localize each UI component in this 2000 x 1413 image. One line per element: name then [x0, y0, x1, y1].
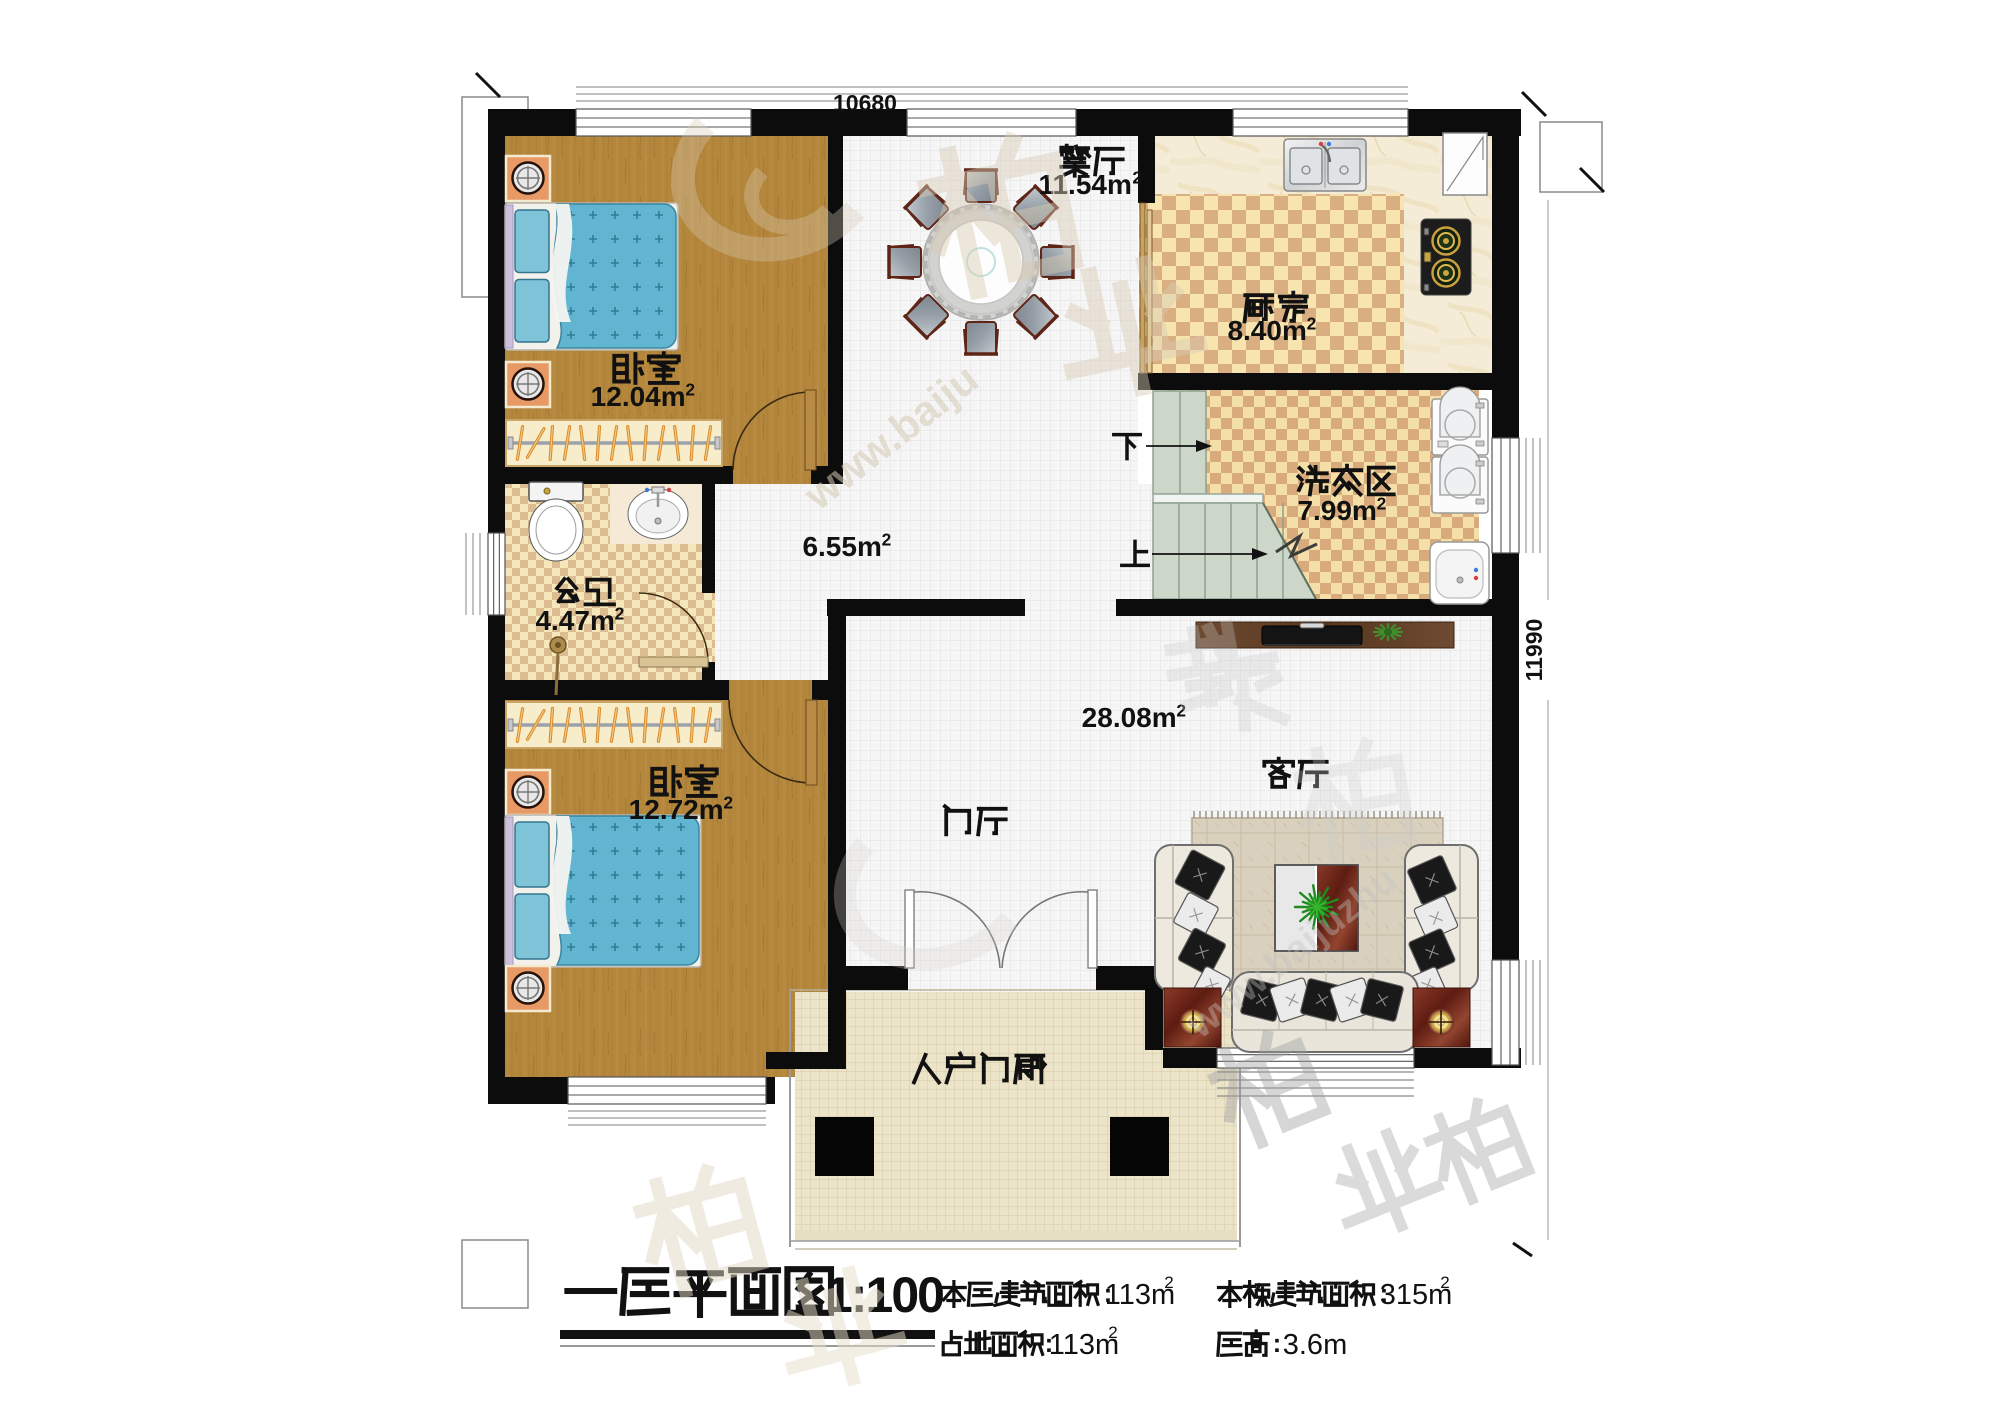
svg-text:2: 2 — [882, 529, 892, 549]
svg-text:2: 2 — [685, 379, 695, 399]
svg-text:2: 2 — [1377, 493, 1387, 513]
svg-text:4.47m: 4.47m — [535, 605, 614, 636]
svg-text:2: 2 — [723, 792, 733, 812]
svg-text:2: 2 — [1132, 167, 1142, 187]
svg-text:28.08m: 28.08m — [1082, 702, 1177, 733]
svg-text:11990: 11990 — [1521, 619, 1547, 682]
svg-text:12.72m: 12.72m — [629, 794, 724, 825]
svg-text:8.40m: 8.40m — [1227, 315, 1306, 346]
svg-text:2: 2 — [1440, 1273, 1449, 1292]
svg-text:10680: 10680 — [833, 90, 897, 116]
svg-text::: : — [1273, 1328, 1282, 1358]
svg-text:3.6m: 3.6m — [1283, 1329, 1347, 1361]
svg-text:7.99m: 7.99m — [1297, 495, 1376, 526]
svg-text:6.55m: 6.55m — [802, 531, 881, 562]
svg-text:2: 2 — [1164, 1273, 1173, 1292]
svg-text:2: 2 — [1307, 313, 1317, 333]
svg-text:2: 2 — [615, 603, 625, 623]
svg-text:2: 2 — [1108, 1323, 1117, 1342]
svg-text:12.04m: 12.04m — [591, 381, 686, 412]
